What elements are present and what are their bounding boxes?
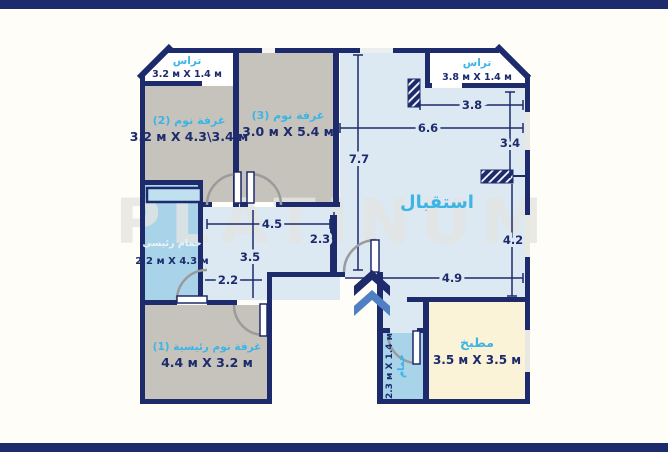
dimension-label: 6.6 [418,121,438,135]
small-bathroom-label: حمام [396,354,407,378]
bathtub-icon [147,188,201,202]
dimension-label: 7.7 [349,152,369,166]
dimension-label: 4.5 [262,217,282,231]
terrace-right-dims: 3.8 м X 1.4 м [442,72,512,83]
main-bathroom-dims: 2.2 м X 4.3 м [135,256,208,267]
window-hatch-icon [408,79,420,107]
dimension-label: 3.5 [240,250,260,264]
terrace-left-dims: 3.2 м X 1.4 м [152,69,222,80]
reception-label: استقبال [400,192,474,213]
bedroom2-label: غرفة نوم (2) [153,114,226,127]
dimension-label: 3.4 [500,136,520,150]
bedroom3-dims: 3.0 м X 5.4 м [242,124,334,139]
dimension-label: 4.9 [442,271,462,285]
dimension-label: 3.8 [462,98,482,112]
floorplan-canvas: PLATINUM [0,0,668,452]
bedroom3-label: غرفة نوم (3) [252,109,325,122]
bedroom2-dims: 3.2 м X 4.3\3.4 м [130,129,248,144]
main-bathroom-label: حمام رئيسي [142,238,201,249]
small-bathroom-dims: 2.3 м X 1.4 м [385,333,395,399]
floorplan-drawing: PLATINUM [0,0,668,452]
kitchen-dims: 3.5 м X 3.5 м [433,353,521,367]
window-hatch-icon [481,170,513,183]
master-bedroom-dims: 4.4 м X 3.2 м [161,355,253,370]
terrace-right-label: تراس [463,57,492,69]
kitchen-label: مطبخ [460,335,494,350]
dimension-label: 2.3 [310,232,330,246]
terrace-left-label: تراس [173,55,202,67]
dimension-label: 4.2 [503,233,523,247]
kitchen-floor [429,302,525,399]
master-bedroom-label: غرفة نوم رئيسية (1) [153,341,262,353]
dimension-label: 2.2 [218,273,238,287]
